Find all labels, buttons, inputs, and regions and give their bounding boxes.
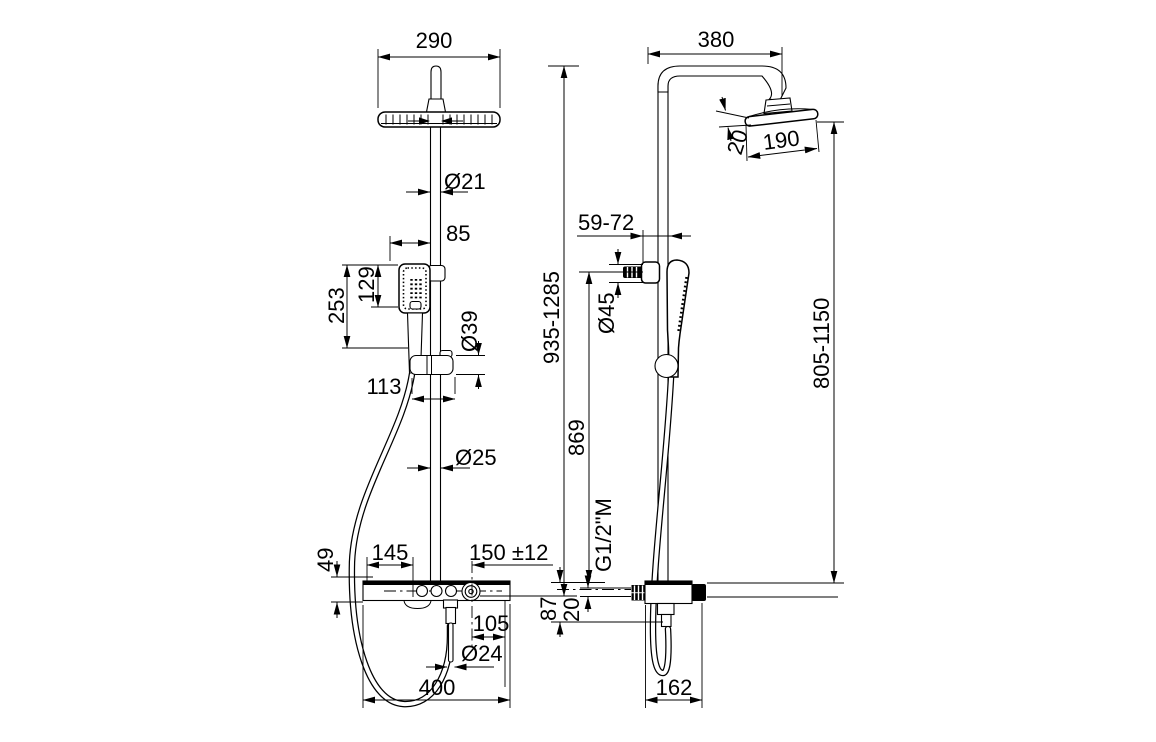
dim-label-59-72: 59-72 [578, 210, 634, 235]
outlet-upper-side [658, 604, 675, 615]
dim-riser-upper-diameter: Ø21 [406, 169, 486, 194]
top-elbow-side [658, 66, 786, 101]
shelf-button-1 [417, 586, 428, 597]
dim-label-87: 87 [536, 597, 561, 621]
wall-bracket-side [623, 262, 660, 283]
dim-label-85: 85 [446, 221, 470, 246]
dim-label-162: 162 [656, 675, 693, 700]
riser-pipe-front [431, 126, 441, 582]
dim-label-d24: Ø24 [461, 641, 503, 666]
dim-label-380: 380 [698, 27, 735, 52]
dim-label-400: 400 [419, 675, 456, 700]
dim-head-thickness: 20 [716, 97, 753, 157]
dim-supply-offset: 20 [559, 572, 631, 622]
outlet-lower-side [662, 615, 672, 627]
dim-label-190: 190 [761, 125, 801, 155]
dim-label-20-head: 20 [722, 127, 753, 158]
dim-label-g12m: G1/2"M [591, 498, 616, 572]
shelf-button-2 [431, 586, 442, 597]
dim-hose-connector-diameter: Ø24 [426, 641, 503, 667]
hose-outlet-bulge [404, 601, 431, 609]
temperature-knob-dot [469, 589, 473, 593]
dim-label-869: 869 [564, 419, 589, 456]
dim-label-150pm12: 150 ±12 [469, 540, 548, 565]
temperature-knob-side [692, 584, 707, 601]
hose-connector-body [446, 608, 456, 624]
label-supply-thread: G1/2"M [557, 498, 631, 589]
shelf-button-3 [446, 586, 457, 597]
dim-label-d45: Ø45 [594, 292, 619, 334]
dim-label-129: 129 [354, 266, 379, 303]
slider-holder-side [655, 355, 678, 378]
technical-drawing-page: 290 Ø21 85 129 253 Ø39 [0, 0, 1156, 742]
dim-label-49: 49 [313, 548, 338, 572]
dim-bracket-projection: 59-72 [577, 210, 691, 262]
dim-label-145: 145 [372, 540, 409, 565]
head-collar-front [427, 99, 446, 112]
side-view [623, 66, 818, 673]
dim-label-935-1285: 935-1285 [539, 271, 564, 364]
dim-label-113: 113 [366, 374, 401, 399]
dim-label-20-supply: 20 [559, 598, 584, 622]
side-view-dimensions: 380 20 190 59-72 Ø45 [536, 27, 844, 708]
overhead-shower-front [378, 112, 500, 127]
dim-total-height-range: 935-1285 [480, 66, 579, 596]
dim-label-805-1150: 805-1150 [809, 298, 834, 389]
dim-head-length: 190 [746, 120, 819, 161]
dim-head-to-shelf-range: 805-1150 [707, 122, 844, 597]
shelf-mixer-side [632, 581, 707, 627]
hand-shower-button-front [410, 302, 421, 310]
dim-holder-diameter: Ø39 [456, 310, 485, 389]
hose-connector-tube [449, 623, 454, 662]
shower-system-dimension-drawing: 290 Ø21 85 129 253 Ø39 [0, 0, 1156, 742]
dim-riser-lower-diameter: Ø25 [407, 445, 497, 470]
dim-handshower-head-height: 129 [342, 265, 398, 307]
head-stub-front [431, 66, 441, 100]
hose-connector-flange [444, 600, 458, 608]
dim-mixer-drop: 87 [536, 567, 663, 637]
dim-label-d25: Ø25 [455, 445, 497, 470]
dim-label-290: 290 [416, 28, 453, 53]
dim-label-d39: Ø39 [457, 310, 482, 352]
dim-label-253: 253 [324, 287, 349, 324]
dim-bracket-diameter: Ø45 [594, 249, 643, 334]
dim-label-105: 105 [473, 611, 510, 636]
dim-label-d21: Ø21 [444, 169, 486, 194]
